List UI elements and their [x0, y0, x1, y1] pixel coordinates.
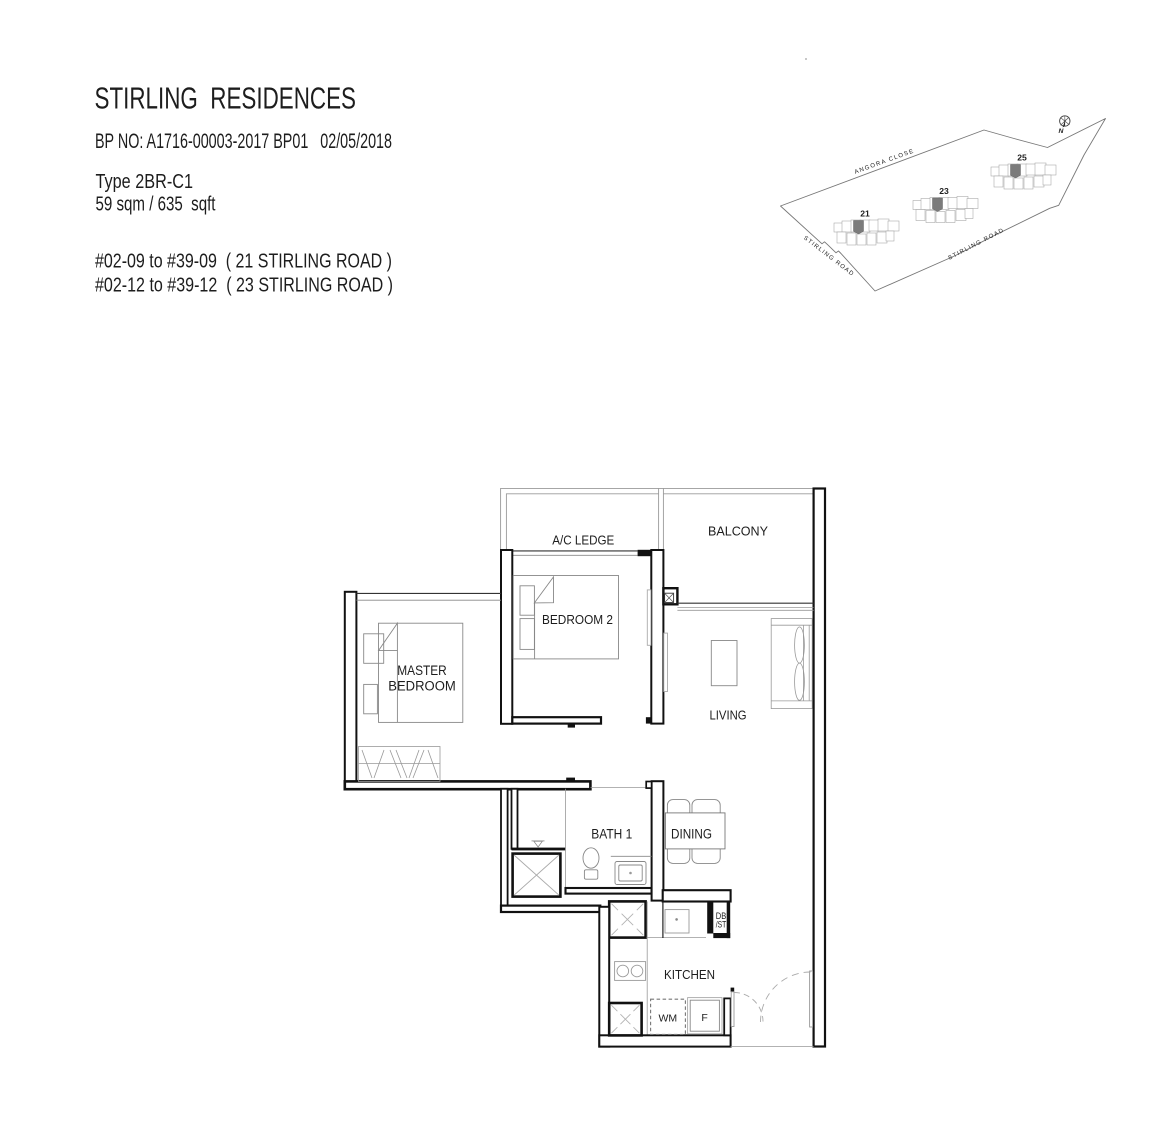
svg-text:KITCHEN: KITCHEN [664, 967, 715, 982]
svg-text:LIVING: LIVING [710, 707, 747, 722]
svg-text:#02-09 to #39-09 ( 21 STIRLIN: #02-09 to #39-09 ( 21 STIRLING ROAD ) [95, 250, 392, 273]
svg-text:BEDROOM: BEDROOM [388, 679, 456, 694]
svg-text:A/C LEDGE: A/C LEDGE [552, 533, 614, 548]
svg-text:DINING: DINING [671, 827, 712, 842]
svg-text:25: 25 [1017, 153, 1027, 163]
svg-text:Type 2BR-C1: Type 2BR-C1 [96, 171, 194, 193]
svg-text:BEDROOM 2: BEDROOM 2 [542, 612, 613, 627]
svg-text:STIRLING RESIDENCES: STIRLING RESIDENCES [95, 81, 357, 116]
svg-text:21: 21 [860, 209, 870, 219]
svg-text:BATH 1: BATH 1 [591, 825, 632, 841]
svg-text:#02-12 to #39-12 ( 23 STIRLIN: #02-12 to #39-12 ( 23 STIRLING ROAD ) [95, 274, 393, 297]
svg-text:/ST: /ST [716, 919, 727, 930]
svg-text:23: 23 [939, 186, 949, 196]
svg-text:BALCONY: BALCONY [708, 524, 768, 539]
svg-text:MASTER: MASTER [397, 663, 447, 678]
svg-text:BP NO: A1716-00003-2017 BP01: BP NO: A1716-00003-2017 BP01 02/05/2018 [95, 129, 392, 153]
svg-text:F: F [701, 1012, 707, 1024]
svg-text:59 sqm / 635 sqft: 59 sqm / 635 sqft [96, 194, 216, 216]
svg-text:WM: WM [658, 1013, 677, 1025]
